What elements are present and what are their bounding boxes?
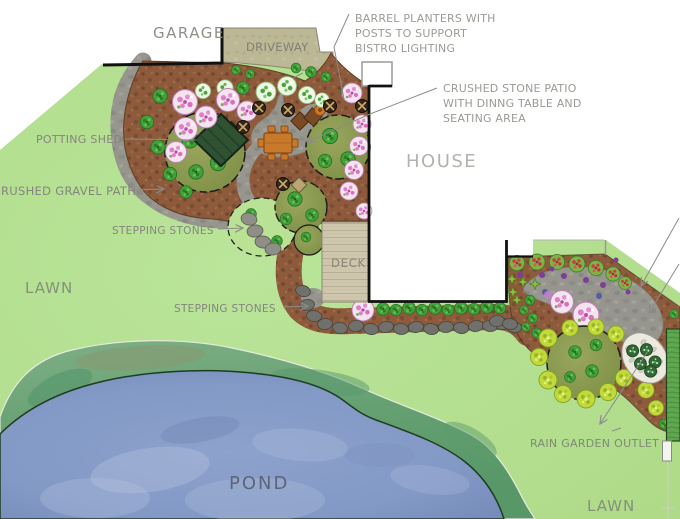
crushed-patio-line2: WITH DINNG TABLE AND — [443, 97, 582, 110]
landscape-plan-canvas: GARAGE DRIVEWAY BARREL PLANTERS WITH POS… — [0, 0, 680, 519]
rain-garden-outlet-label: RAIN GARDEN OUTLET — [530, 437, 659, 450]
pond-label: POND — [229, 473, 289, 494]
lawn-bottom-right-label: LAWN — [587, 497, 635, 515]
crushed-patio-line3: SEATING AREA — [443, 112, 526, 125]
barrel-planters-line3: BISTRO LIGHTING — [355, 42, 455, 55]
deck-label: DECK — [331, 256, 366, 270]
driveway-label: DRIVEWAY — [246, 40, 309, 54]
barrel-planters-line2: POSTS TO SUPPORT — [355, 27, 467, 40]
gravel-path-label: RUSHED GRAVEL PATH — [1, 184, 136, 198]
potting-shed-label: POTTING SHED — [36, 133, 122, 146]
outlet-structure — [663, 441, 672, 461]
house-stoop — [362, 62, 392, 86]
landscape-plan-page: GARAGE DRIVEWAY BARREL PLANTERS WITH POS… — [0, 0, 680, 519]
drainage-swale-strip — [667, 329, 680, 441]
stepping-stones-lower-label: STEPPING STONES — [174, 303, 276, 315]
stepping-stones-upper-label: STEPPING STONES — [112, 225, 214, 237]
house-label: HOUSE — [406, 151, 477, 172]
lawn-left-label: LAWN — [25, 279, 73, 297]
barrel-planters-line1: BARREL PLANTERS WITH — [355, 12, 496, 25]
garage-label: GARAGE — [153, 24, 225, 42]
crushed-patio-line1: CRUSHED STONE PATIO — [443, 82, 577, 95]
